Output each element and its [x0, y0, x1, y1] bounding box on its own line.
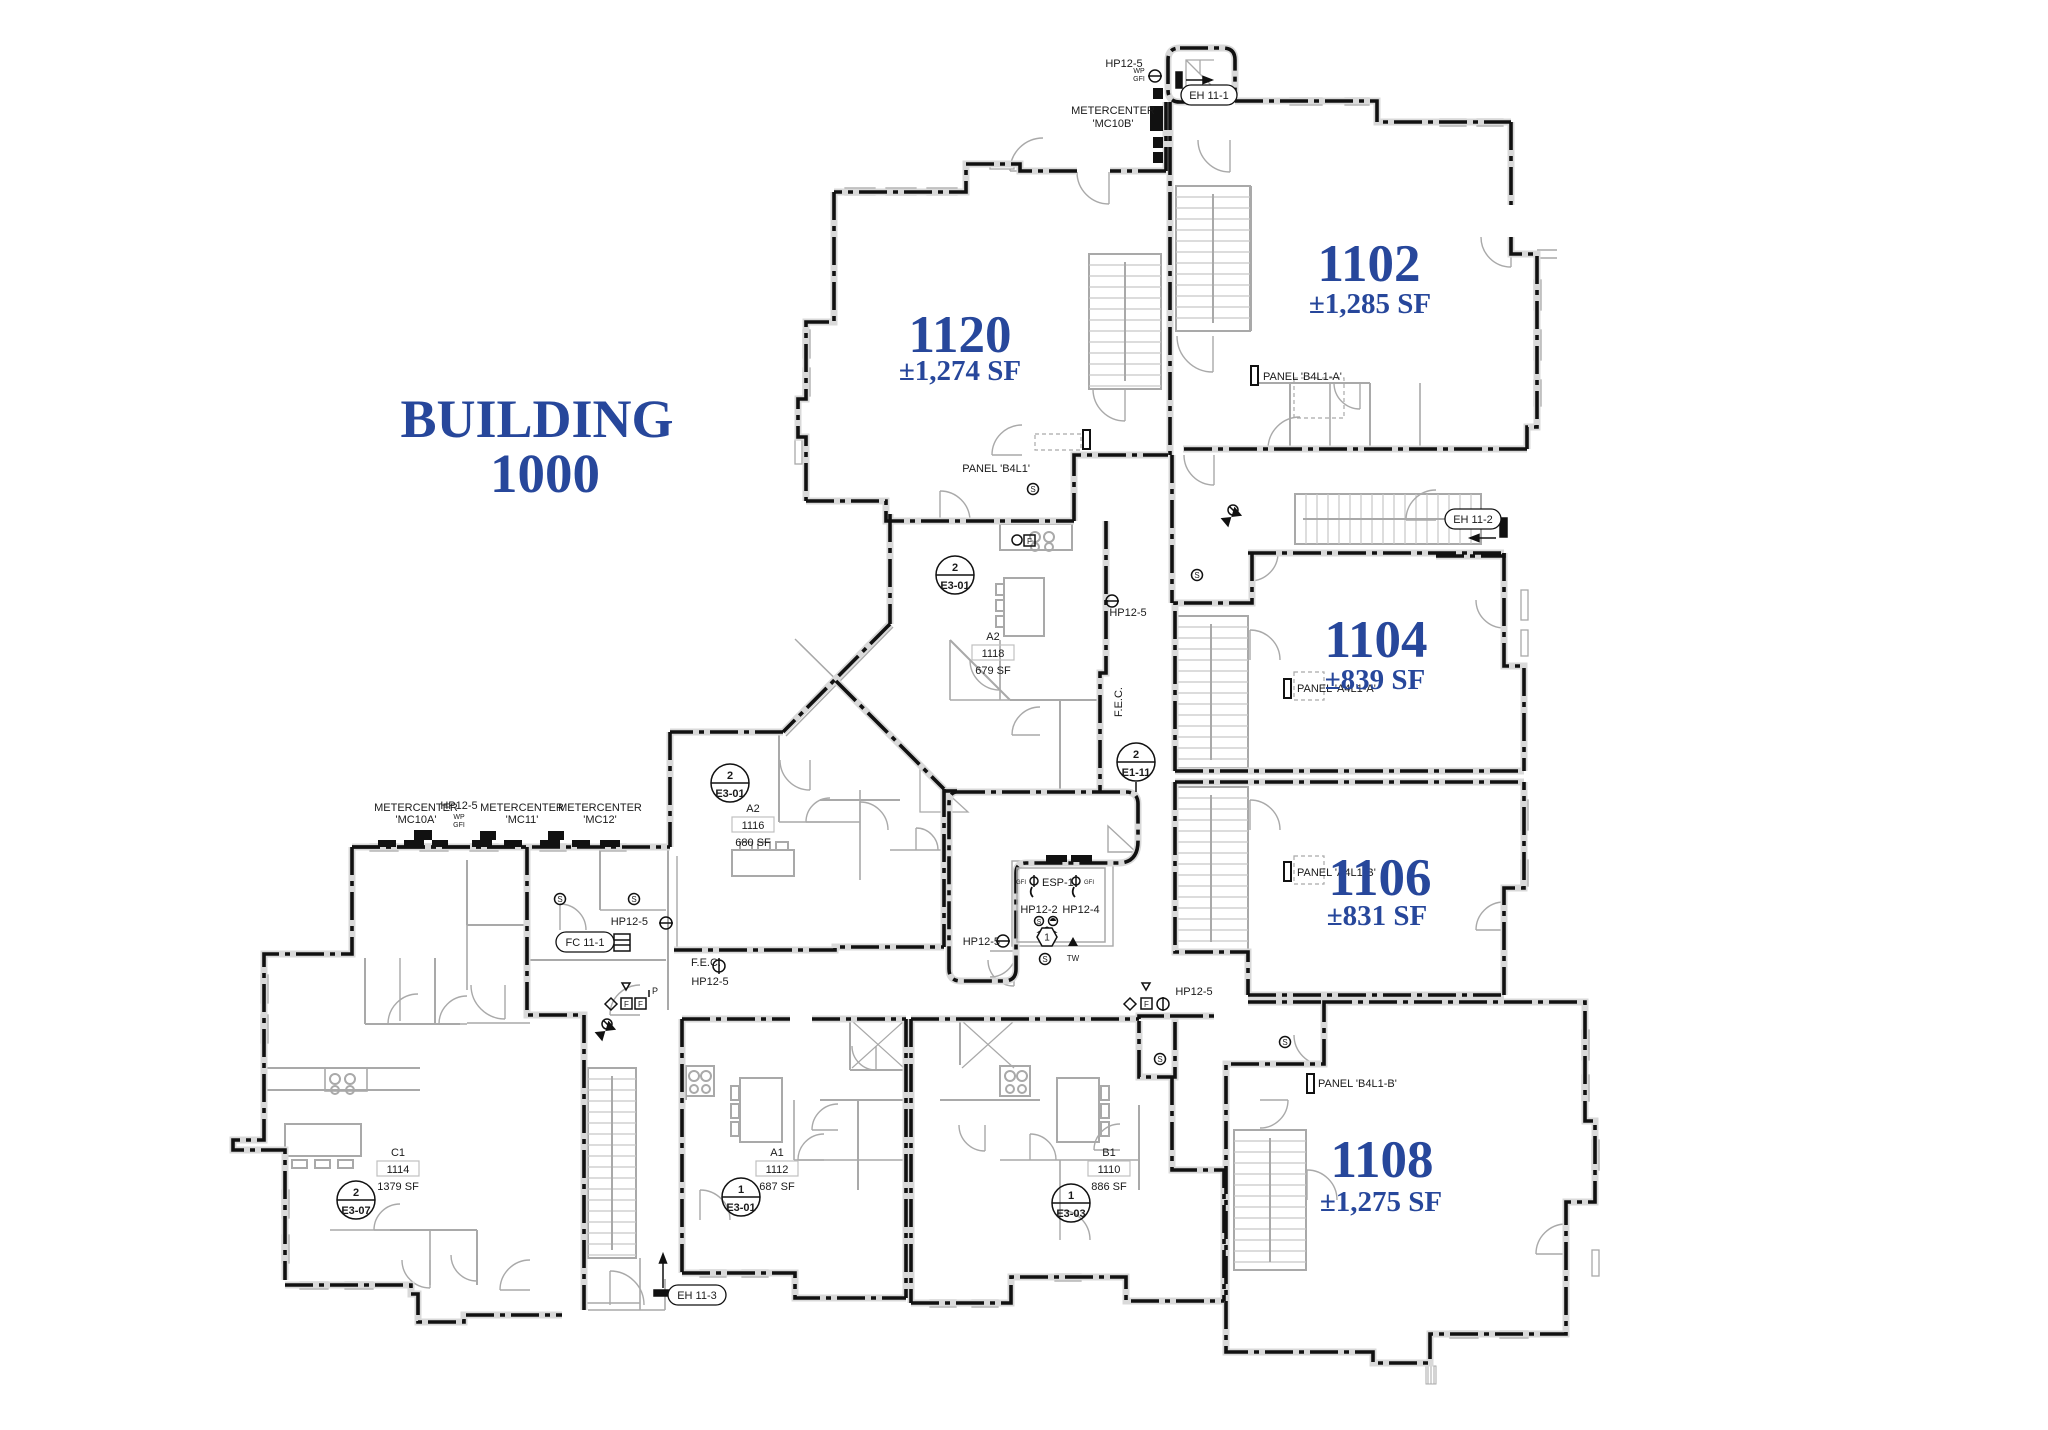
- svg-text:S: S: [1157, 1055, 1162, 1064]
- svg-text:±1,285 SF: ±1,285 SF: [1309, 288, 1431, 320]
- svg-text:HP12-5: HP12-5: [691, 976, 728, 988]
- svg-text:METERCENTER: METERCENTER: [1071, 105, 1155, 117]
- svg-text:F: F: [1027, 537, 1032, 546]
- svg-text:HP12-4: HP12-4: [1062, 904, 1099, 916]
- svg-text:'MC12': 'MC12': [583, 814, 617, 826]
- svg-text:1106: 1106: [1328, 849, 1431, 907]
- svg-text:HP12-5: HP12-5: [611, 916, 648, 928]
- svg-text:2: 2: [353, 1187, 359, 1199]
- svg-text:S: S: [631, 895, 636, 904]
- svg-text:C1: C1: [391, 1147, 405, 1159]
- svg-text:HP12-2: HP12-2: [1020, 904, 1057, 916]
- svg-text:1112: 1112: [766, 1164, 789, 1176]
- svg-text:2: 2: [727, 770, 733, 782]
- svg-text:WP: WP: [1133, 68, 1145, 75]
- svg-text:1000: 1000: [490, 443, 600, 504]
- svg-text:1114: 1114: [387, 1164, 410, 1176]
- svg-text:FC 11-1: FC 11-1: [566, 937, 605, 949]
- svg-text:GFI: GFI: [453, 822, 465, 829]
- svg-text:F.E.C.: F.E.C.: [691, 957, 721, 969]
- svg-text:'MC11': 'MC11': [506, 814, 539, 826]
- svg-text:EH 11-1: EH 11-1: [1189, 90, 1229, 102]
- svg-text:1108: 1108: [1330, 1131, 1433, 1189]
- svg-text:1: 1: [1068, 1190, 1074, 1202]
- svg-text:1110: 1110: [1098, 1164, 1121, 1176]
- svg-text:S: S: [1042, 955, 1047, 964]
- svg-text:±831 SF: ±831 SF: [1327, 900, 1428, 932]
- svg-text:P: P: [652, 986, 658, 996]
- svg-text:687 SF: 687 SF: [759, 1181, 795, 1193]
- svg-text:E3-03: E3-03: [1056, 1208, 1085, 1220]
- svg-text:HP12-5: HP12-5: [1175, 986, 1212, 998]
- svg-text:679 SF: 679 SF: [975, 665, 1011, 677]
- svg-text:A2: A2: [746, 803, 759, 815]
- svg-text:PANEL 'B4L1-A': PANEL 'B4L1-A': [1263, 371, 1342, 383]
- svg-text:EH 11-2: EH 11-2: [1453, 514, 1493, 526]
- svg-text:ESP-1: ESP-1: [1042, 877, 1074, 889]
- svg-text:'MC10A': 'MC10A': [396, 814, 437, 826]
- svg-text:1118: 1118: [982, 648, 1005, 660]
- svg-text:1: 1: [738, 1184, 744, 1196]
- svg-text:1116: 1116: [742, 820, 765, 832]
- svg-text:1104: 1104: [1324, 611, 1427, 669]
- svg-text:S: S: [557, 895, 562, 904]
- svg-text:F: F: [638, 1000, 643, 1009]
- svg-text:1: 1: [1044, 933, 1050, 944]
- svg-text:E3-01: E3-01: [940, 580, 969, 592]
- svg-text:S: S: [1030, 485, 1035, 494]
- svg-text:F: F: [624, 1000, 629, 1009]
- svg-text:1102: 1102: [1317, 235, 1420, 293]
- svg-text:TW: TW: [1067, 954, 1080, 963]
- svg-text:S: S: [1282, 1038, 1287, 1047]
- svg-text:'MC10B': 'MC10B': [1093, 118, 1134, 130]
- svg-text:E3-01: E3-01: [726, 1202, 755, 1214]
- svg-text:PANEL 'B4L1': PANEL 'B4L1': [962, 463, 1030, 475]
- svg-text:F.E.C.: F.E.C.: [1113, 687, 1125, 717]
- svg-text:F: F: [1144, 1000, 1149, 1009]
- svg-text:E3-07: E3-07: [341, 1205, 370, 1217]
- svg-text:METERCENTER: METERCENTER: [558, 802, 642, 814]
- svg-text:S: S: [1194, 571, 1199, 580]
- svg-text:2: 2: [1133, 749, 1139, 761]
- svg-text:886 SF: 886 SF: [1091, 1181, 1127, 1193]
- svg-text:680 SF: 680 SF: [735, 837, 771, 849]
- svg-text:1379 SF: 1379 SF: [377, 1181, 419, 1193]
- svg-text:HP12-5: HP12-5: [440, 800, 477, 812]
- svg-text:±1,275 SF: ±1,275 SF: [1320, 1186, 1442, 1218]
- svg-text:HP12-5: HP12-5: [963, 936, 1000, 948]
- svg-text:±1,274 SF: ±1,274 SF: [899, 355, 1021, 387]
- svg-text:BUILDING: BUILDING: [400, 389, 673, 449]
- svg-text:A2: A2: [986, 631, 999, 643]
- svg-text:S: S: [1037, 919, 1042, 926]
- svg-text:GFI: GFI: [1016, 880, 1026, 886]
- svg-text:E3-01: E3-01: [715, 788, 744, 800]
- svg-text:B1: B1: [1102, 1147, 1115, 1159]
- svg-text:E1-11: E1-11: [1122, 767, 1151, 779]
- svg-text:GFI: GFI: [1133, 76, 1145, 83]
- svg-text:EH 11-3: EH 11-3: [677, 1290, 717, 1302]
- svg-text:PANEL 'B4L1-B': PANEL 'B4L1-B': [1318, 1078, 1397, 1090]
- svg-text:±839 SF: ±839 SF: [1325, 664, 1426, 696]
- svg-text:METERCENTER: METERCENTER: [480, 802, 564, 814]
- svg-text:WP: WP: [453, 814, 465, 821]
- svg-text:GFI: GFI: [1084, 880, 1094, 886]
- svg-text:HP12-5: HP12-5: [1109, 607, 1146, 619]
- svg-text:A1: A1: [770, 1147, 783, 1159]
- svg-text:2: 2: [952, 562, 958, 574]
